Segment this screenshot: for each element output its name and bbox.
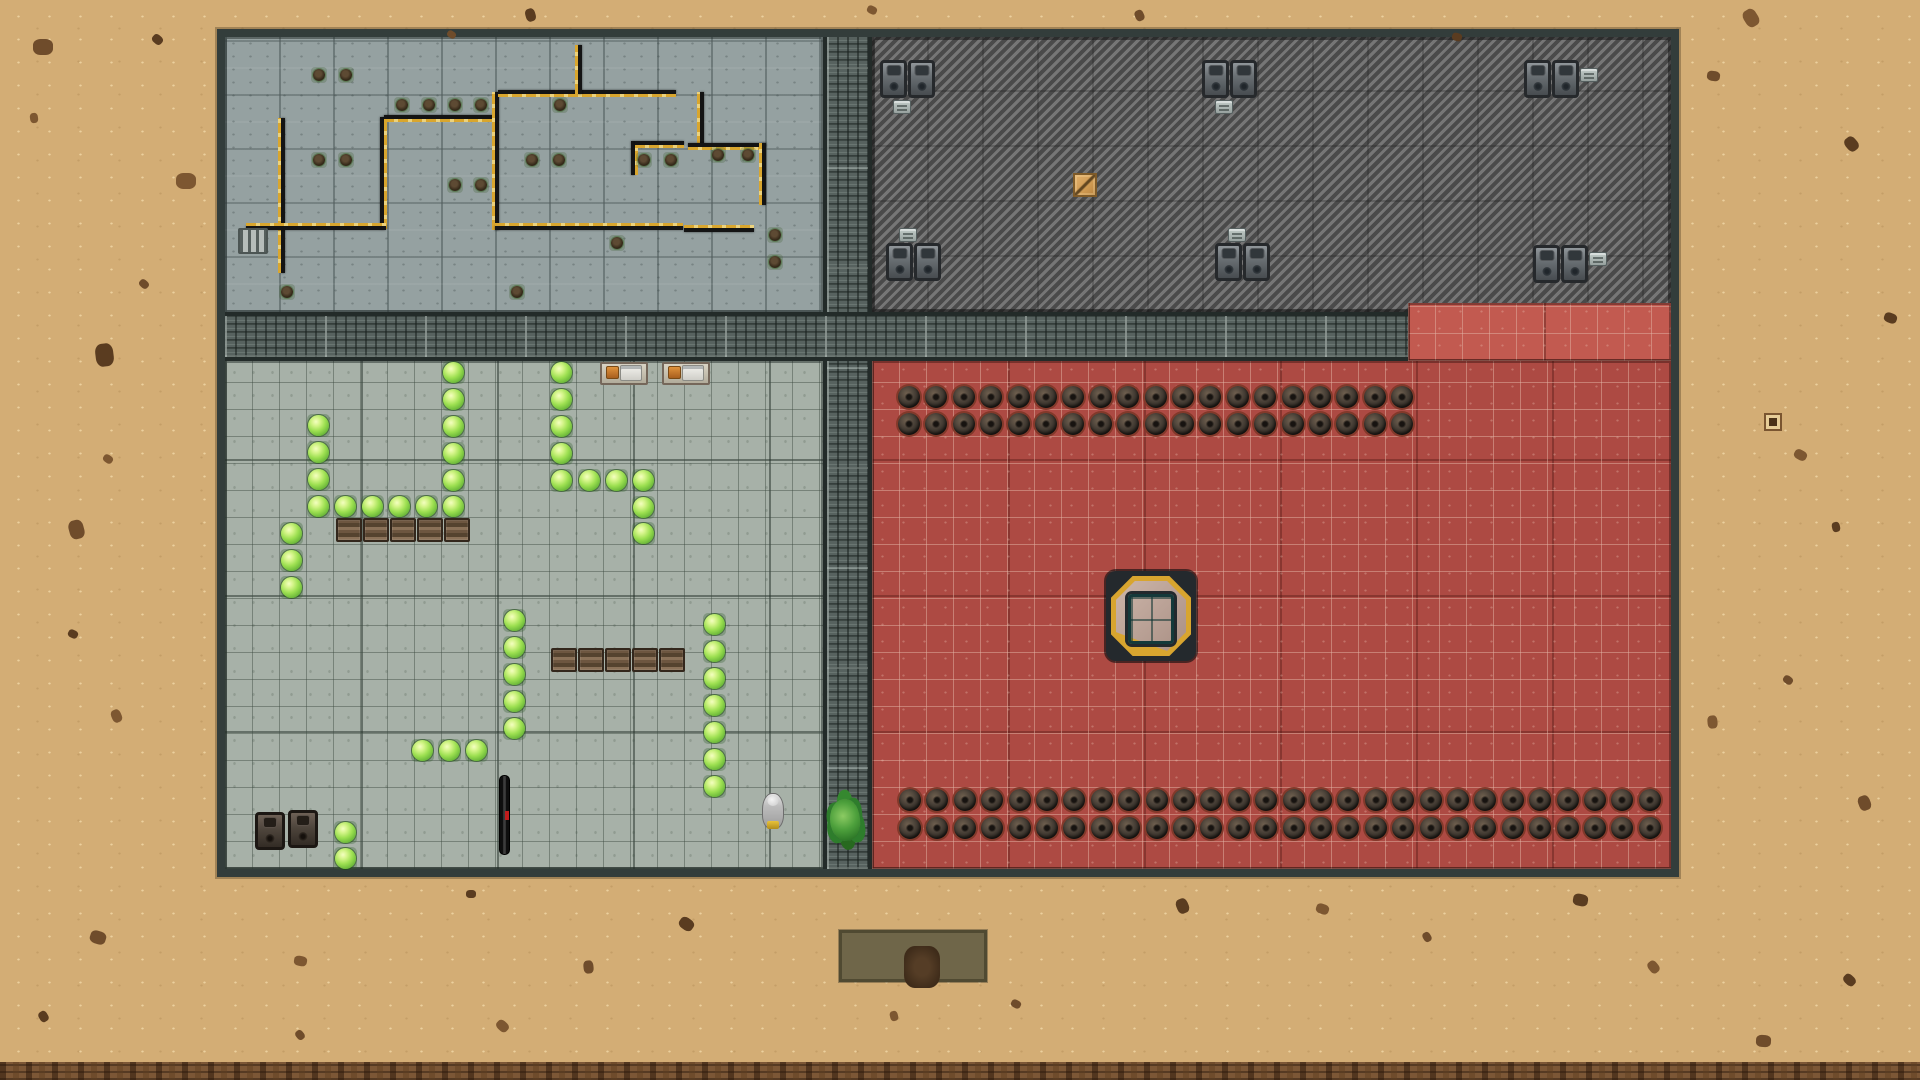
bush[interactable] [632, 469, 655, 492]
mine[interactable] [1392, 817, 1414, 839]
mine[interactable] [1228, 817, 1250, 839]
mine[interactable] [1118, 817, 1140, 839]
bush[interactable] [703, 694, 726, 717]
mine[interactable] [898, 386, 920, 408]
vent [1215, 100, 1233, 114]
mine[interactable] [1173, 789, 1195, 811]
mine[interactable] [1365, 817, 1387, 839]
mine[interactable] [1309, 386, 1331, 408]
potted-plant[interactable] [767, 227, 783, 243]
pallet-shelf[interactable] [363, 518, 389, 542]
maze-wall [762, 143, 766, 205]
potted-plant[interactable] [394, 97, 410, 113]
cooler-unit[interactable] [880, 60, 907, 98]
bush[interactable] [334, 821, 357, 844]
mine[interactable] [1091, 817, 1113, 839]
bush[interactable] [703, 667, 726, 690]
mine[interactable] [1117, 386, 1139, 408]
red-zone-extension[interactable] [1408, 303, 1671, 361]
maze-wall [635, 141, 684, 145]
mine[interactable] [1146, 817, 1168, 839]
cooler-unit[interactable] [914, 243, 941, 281]
bush[interactable] [438, 739, 461, 762]
bush[interactable] [503, 609, 526, 632]
bush[interactable] [703, 748, 726, 771]
cooler-unit[interactable] [908, 60, 935, 98]
vent [1580, 68, 1598, 82]
mine[interactable] [1255, 817, 1277, 839]
bush[interactable] [550, 361, 573, 384]
potted-plant[interactable] [609, 235, 625, 251]
potted-plant[interactable] [710, 147, 726, 163]
potted-plant[interactable] [473, 97, 489, 113]
maze-wall [384, 115, 498, 119]
sand-debris [1841, 972, 1857, 988]
mine[interactable] [1062, 386, 1084, 408]
mine[interactable] [1336, 386, 1358, 408]
cooler-unit[interactable] [1552, 60, 1579, 98]
mine[interactable] [1228, 789, 1250, 811]
mine[interactable] [1557, 789, 1579, 811]
mine[interactable] [1063, 817, 1085, 839]
colonist[interactable] [762, 793, 784, 829]
mine[interactable] [1172, 386, 1194, 408]
bush[interactable] [307, 495, 330, 518]
sand-debris [1883, 311, 1899, 325]
potted-plant[interactable] [421, 97, 437, 113]
mine[interactable] [1310, 817, 1332, 839]
mine[interactable] [1063, 789, 1085, 811]
bush[interactable] [280, 549, 303, 572]
bush[interactable] [550, 442, 573, 465]
mine[interactable] [1502, 817, 1524, 839]
potted-plant[interactable] [551, 152, 567, 168]
sand-debris [1646, 959, 1662, 975]
mine[interactable] [1172, 413, 1194, 435]
mine[interactable] [981, 789, 1003, 811]
sand-debris [466, 890, 476, 898]
cooler-unit[interactable] [1215, 243, 1242, 281]
vent [899, 228, 917, 242]
bush[interactable] [605, 469, 628, 492]
mine[interactable] [1090, 386, 1112, 408]
ground-marker [1764, 413, 1782, 431]
mine[interactable] [1584, 817, 1606, 839]
mine[interactable] [1391, 413, 1413, 435]
mine[interactable] [1337, 789, 1359, 811]
sand-debris [1782, 674, 1795, 686]
bush[interactable] [550, 388, 573, 411]
corridor-vertical[interactable] [823, 37, 872, 869]
bush[interactable] [550, 415, 573, 438]
sand-debris [1133, 9, 1146, 23]
sand-debris [1740, 7, 1761, 30]
mine[interactable] [1118, 789, 1140, 811]
mine[interactable] [1639, 817, 1661, 839]
sand-debris [524, 7, 537, 22]
pallet-shelf[interactable] [417, 518, 443, 542]
mine[interactable] [953, 413, 975, 435]
bush[interactable] [703, 721, 726, 744]
sand-debris [138, 278, 151, 291]
dirt-pit [839, 930, 987, 982]
mine[interactable] [954, 817, 976, 839]
mine[interactable] [1200, 817, 1222, 839]
pallet-shelf[interactable] [444, 518, 470, 542]
potted-plant[interactable] [447, 177, 463, 193]
mine[interactable] [1199, 386, 1221, 408]
bush[interactable] [442, 361, 465, 384]
mine[interactable] [1447, 817, 1469, 839]
pallet-shelf[interactable] [605, 648, 631, 672]
potted-plant[interactable] [338, 152, 354, 168]
potted-plant[interactable] [740, 147, 756, 163]
mine[interactable] [1036, 817, 1058, 839]
maze-wall [380, 117, 384, 229]
sand-debris [67, 518, 86, 540]
bush[interactable] [550, 469, 573, 492]
bush[interactable] [442, 495, 465, 518]
maze-wall [684, 228, 754, 232]
mine[interactable] [1227, 386, 1249, 408]
sand-debris [677, 915, 696, 933]
sand-debris [1572, 893, 1589, 908]
sand-debris [1707, 715, 1718, 729]
mine[interactable] [1557, 817, 1579, 839]
bush[interactable] [442, 388, 465, 411]
potted-plant[interactable] [552, 97, 568, 113]
mine[interactable] [1009, 817, 1031, 839]
pallet-shelf[interactable] [659, 648, 685, 672]
mine[interactable] [1283, 817, 1305, 839]
vent [893, 100, 911, 114]
pallet-shelf[interactable] [551, 648, 577, 672]
mine[interactable] [1420, 789, 1442, 811]
mine[interactable] [1365, 789, 1387, 811]
generator-unit[interactable] [288, 810, 318, 848]
potted-plant[interactable] [509, 284, 525, 300]
sand-debris [33, 39, 53, 55]
workbench[interactable] [600, 362, 648, 385]
mine[interactable] [1062, 413, 1084, 435]
sand-debris [37, 1009, 50, 1023]
sand-debris [94, 342, 115, 367]
mine[interactable] [1146, 789, 1168, 811]
bush[interactable] [442, 469, 465, 492]
mine[interactable] [1391, 386, 1413, 408]
mine[interactable] [1502, 789, 1524, 811]
sand-debris [67, 628, 79, 640]
bush[interactable] [415, 495, 438, 518]
pallet-shelf[interactable] [390, 518, 416, 542]
corridor-horizontal[interactable] [225, 312, 1408, 361]
mine[interactable] [1420, 817, 1442, 839]
mine[interactable] [899, 817, 921, 839]
bush[interactable] [703, 640, 726, 663]
bush[interactable] [411, 739, 434, 762]
potted-plant[interactable] [767, 254, 783, 270]
radiator[interactable] [238, 228, 268, 254]
pallet-shelf[interactable] [336, 518, 362, 542]
bush[interactable] [465, 739, 488, 762]
maze-wall [688, 143, 766, 147]
potted-plant[interactable] [524, 152, 540, 168]
mine[interactable] [1255, 789, 1277, 811]
mine[interactable] [1008, 413, 1030, 435]
generator-unit[interactable] [255, 812, 285, 850]
maze-wall [281, 118, 285, 273]
sand-debris [583, 960, 594, 974]
mine[interactable] [1611, 789, 1633, 811]
mine[interactable] [1336, 413, 1358, 435]
maze-wall [495, 226, 683, 230]
mine[interactable] [1035, 386, 1057, 408]
mine[interactable] [1309, 413, 1331, 435]
sand-debris [29, 112, 38, 123]
desert-ground: { "scene": {"canvas": {"w": 1920, "h": 1… [0, 0, 1920, 1080]
teleporter-core [1128, 594, 1174, 644]
mine[interactable] [1364, 386, 1386, 408]
bush[interactable] [632, 496, 655, 519]
sand-debris [1315, 902, 1331, 916]
bush[interactable] [388, 495, 411, 518]
cooler-unit[interactable] [1533, 245, 1560, 283]
mine[interactable] [1474, 789, 1496, 811]
maze-wall [495, 92, 499, 230]
mine[interactable] [1090, 413, 1112, 435]
pallet-shelf[interactable] [632, 648, 658, 672]
mine[interactable] [1091, 789, 1113, 811]
mine[interactable] [980, 413, 1002, 435]
mine[interactable] [1611, 817, 1633, 839]
dropped-rifle[interactable] [499, 775, 510, 855]
bush[interactable] [703, 775, 726, 798]
pallet-shelf[interactable] [578, 648, 604, 672]
sand-debris [1706, 70, 1720, 82]
sand-debris [1842, 134, 1861, 153]
mine[interactable] [981, 817, 1003, 839]
mine[interactable] [1036, 789, 1058, 811]
bush[interactable] [307, 414, 330, 437]
mine[interactable] [1200, 789, 1222, 811]
mine[interactable] [1529, 817, 1551, 839]
bush[interactable] [503, 663, 526, 686]
vent [1228, 228, 1246, 242]
mine[interactable] [1392, 789, 1414, 811]
sand-debris [294, 1029, 307, 1042]
potted-plant[interactable] [447, 97, 463, 113]
sand-debris [1174, 897, 1191, 915]
mine[interactable] [1199, 413, 1221, 435]
bush[interactable] [632, 522, 655, 545]
bush[interactable] [703, 613, 726, 636]
mine[interactable] [1282, 386, 1304, 408]
mine[interactable] [1254, 413, 1276, 435]
mine[interactable] [1447, 789, 1469, 811]
maze-wall [578, 45, 582, 94]
sand-debris [1792, 448, 1808, 463]
bush[interactable] [280, 522, 303, 545]
rubble-strip [0, 1062, 1920, 1080]
sand-debris [102, 453, 115, 465]
sand-debris [1856, 794, 1873, 812]
potted-plant[interactable] [311, 67, 327, 83]
mine[interactable] [1035, 413, 1057, 435]
sand-debris [1010, 998, 1023, 1010]
mine[interactable] [926, 789, 948, 811]
mine[interactable] [898, 413, 920, 435]
potted-plant[interactable] [311, 152, 327, 168]
potted-plant[interactable] [279, 284, 295, 300]
bush[interactable] [361, 495, 384, 518]
mine[interactable] [1145, 413, 1167, 435]
sand-debris [176, 173, 196, 189]
bush[interactable] [334, 847, 357, 870]
mine[interactable] [1529, 789, 1551, 811]
mine[interactable] [1337, 817, 1359, 839]
cooler-unit[interactable] [1524, 60, 1551, 98]
mine[interactable] [953, 386, 975, 408]
cooler-unit[interactable] [1561, 245, 1588, 283]
potted-plant[interactable] [338, 67, 354, 83]
mine[interactable] [1117, 413, 1139, 435]
sand-debris [293, 955, 308, 967]
sand-debris [1421, 931, 1433, 944]
mine[interactable] [925, 413, 947, 435]
mine[interactable] [1227, 413, 1249, 435]
bush[interactable] [503, 636, 526, 659]
bush[interactable] [307, 441, 330, 464]
mine[interactable] [899, 789, 921, 811]
bush[interactable] [442, 442, 465, 465]
sand-debris [494, 1018, 510, 1034]
bush[interactable] [578, 469, 601, 492]
mine[interactable] [1639, 789, 1661, 811]
vent [1589, 252, 1607, 266]
game-map[interactable] [0, 0, 1920, 1080]
mine[interactable] [1008, 386, 1030, 408]
cooler-unit[interactable] [1230, 60, 1257, 98]
maze-wall [498, 90, 676, 94]
sand-debris [88, 929, 107, 946]
maze-wall [700, 92, 704, 146]
mine[interactable] [1254, 386, 1276, 408]
supply-crate[interactable] [1073, 173, 1097, 197]
mine[interactable] [1173, 817, 1195, 839]
mine[interactable] [1364, 413, 1386, 435]
potted-plant[interactable] [663, 152, 679, 168]
mine[interactable] [954, 789, 976, 811]
bush[interactable] [307, 468, 330, 491]
mine[interactable] [980, 386, 1002, 408]
sand-debris [866, 4, 878, 15]
mine[interactable] [925, 386, 947, 408]
cooler-unit[interactable] [1202, 60, 1229, 98]
sand-debris [109, 708, 123, 724]
bush[interactable] [503, 717, 526, 740]
bush[interactable] [334, 495, 357, 518]
mine[interactable] [1282, 413, 1304, 435]
cooler-unit[interactable] [886, 243, 913, 281]
sand-debris [889, 1010, 899, 1022]
bush[interactable] [280, 576, 303, 599]
mine[interactable] [926, 817, 948, 839]
mine[interactable] [1474, 817, 1496, 839]
sand-debris [1831, 521, 1841, 533]
mine[interactable] [1283, 789, 1305, 811]
mine[interactable] [1310, 789, 1332, 811]
mine[interactable] [1584, 789, 1606, 811]
sand-debris [150, 32, 164, 46]
bush[interactable] [503, 690, 526, 713]
sand-debris [1756, 1035, 1772, 1048]
cooler-unit[interactable] [1243, 243, 1270, 281]
mine[interactable] [1009, 789, 1031, 811]
bush[interactable] [442, 415, 465, 438]
potted-plant[interactable] [473, 177, 489, 193]
mine[interactable] [1145, 386, 1167, 408]
potted-plant[interactable] [636, 152, 652, 168]
workbench[interactable] [662, 362, 710, 385]
